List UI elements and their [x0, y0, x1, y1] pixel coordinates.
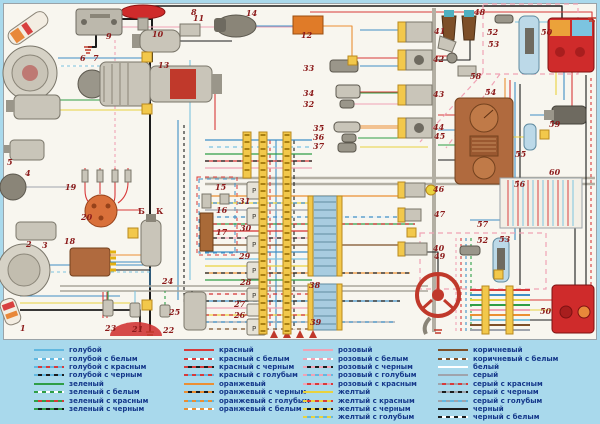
- connector-icons-46-47-40: [398, 182, 436, 256]
- legend-swatch: [438, 358, 468, 360]
- distributor-icon: [85, 195, 117, 227]
- component-number: 7: [93, 53, 99, 63]
- legend-label: розовый с голубым: [338, 371, 416, 379]
- component-number: 57: [477, 219, 489, 229]
- legend-label: красный с голубым: [219, 371, 298, 379]
- legend-swatch: [438, 349, 468, 351]
- legend-item: красный с черным: [184, 363, 310, 371]
- legend-label: желтый с голубым: [338, 413, 414, 421]
- component-number: 18: [64, 236, 76, 246]
- component-number: 47: [434, 209, 446, 219]
- component-number: 9: [106, 31, 112, 41]
- legend-label: черный с белым: [473, 413, 539, 421]
- fuel-sender-icon: [519, 16, 539, 74]
- legend-label: оранжевый с голубым: [219, 397, 310, 405]
- legend-item: оранжевый с черным: [184, 388, 310, 396]
- legend-item: коричневый: [438, 346, 558, 354]
- svg-text:P: P: [252, 325, 256, 333]
- component-number: 52: [487, 27, 499, 37]
- svg-text:P: P: [252, 267, 256, 275]
- legend-item: зеленый с красным: [34, 396, 148, 404]
- svg-text:P: P: [252, 213, 256, 221]
- component-number: 31: [239, 196, 250, 206]
- interior-lamp-icon-55: [524, 124, 536, 150]
- legend-label: зеленый с красным: [69, 397, 148, 405]
- legend-item: розовый с красным: [303, 380, 417, 388]
- legend-label: серый с голубым: [473, 397, 542, 405]
- component-number: 29: [238, 251, 251, 261]
- component-number: 22: [162, 325, 175, 335]
- legend-item: зеленый с белым: [34, 388, 148, 396]
- legend-label: голубой с красным: [69, 363, 146, 371]
- component-number: 25: [168, 307, 181, 317]
- legend-label: серый: [473, 371, 498, 379]
- legend-label: черный: [473, 405, 504, 413]
- legend-label: голубой с черным: [69, 371, 142, 379]
- terminal-letter: Б: [138, 206, 145, 216]
- legend-item: черный: [438, 405, 558, 413]
- legend-item: белый: [438, 363, 558, 371]
- horn-icon: [0, 174, 26, 200]
- component-number: 58: [470, 71, 482, 81]
- sensor-icon-52: [495, 15, 513, 23]
- legend-label: оранжевый с белым: [219, 405, 302, 413]
- voltage-regulator-icon: [70, 248, 116, 276]
- component-number: 45: [434, 131, 446, 141]
- legend-label: белый: [473, 363, 499, 371]
- tail-lamp-bottom-icon: [552, 285, 594, 333]
- component-number: 12: [301, 30, 313, 40]
- legend-swatch: [303, 366, 333, 368]
- legend-column-brown-grey-black: коричневыйкоричневый с белымбелыйсерыйсе…: [438, 346, 558, 422]
- component-number: 10: [152, 29, 164, 39]
- relay-icon-11: [180, 24, 200, 36]
- legend-item: розовый с белым: [303, 354, 417, 362]
- component-number: 34: [303, 88, 315, 98]
- legend-label: розовый с белым: [338, 355, 408, 363]
- legend-item: голубой с красным: [34, 363, 148, 371]
- component-number: 38: [309, 280, 321, 290]
- legend-item: голубой с черным: [34, 371, 148, 379]
- legend-label: оранжевый с черным: [219, 388, 306, 396]
- component-number: 16: [216, 205, 228, 215]
- legend-item: розовый с голубым: [303, 371, 417, 379]
- legend-swatch: [303, 416, 333, 418]
- component-number: 32: [303, 99, 315, 109]
- legend-swatch: [184, 366, 214, 368]
- component-number: 3: [42, 240, 48, 250]
- component-number: 13: [158, 60, 170, 70]
- legend-item: красный с белым: [184, 354, 310, 362]
- legend-swatch: [303, 374, 333, 376]
- legend-item: серый с голубым: [438, 396, 558, 404]
- relay-block-icons: [398, 22, 432, 138]
- component-number: 42: [433, 54, 445, 64]
- legend-label: розовый с черным: [338, 363, 413, 371]
- horn-top-icon: [121, 5, 165, 30]
- legend-item: зеленый: [34, 380, 148, 388]
- instrument-cluster-icon: [455, 98, 513, 184]
- legend-item: желтый: [303, 388, 417, 396]
- ignition-coils-icon: [442, 10, 476, 40]
- component-number: 5: [7, 157, 13, 167]
- legend-item: желтый с голубым: [303, 413, 417, 421]
- starter-icon: [150, 66, 222, 102]
- legend-label: коричневый: [473, 346, 523, 354]
- legend-item: коричневый с белым: [438, 354, 558, 362]
- component-number: 30: [240, 223, 252, 233]
- legend-swatch: [438, 366, 468, 368]
- legend-column-red-orange: красныйкрасный с белымкрасный с чернымкр…: [184, 346, 310, 413]
- legend-swatch: [438, 391, 468, 393]
- legend-column-pink-yellow: розовыйрозовый с белымрозовый с чернымро…: [303, 346, 417, 422]
- component-number: 53: [499, 234, 511, 244]
- component-number: 59: [549, 119, 561, 129]
- component-number: 15: [215, 182, 227, 192]
- component-number: 24: [161, 276, 174, 286]
- legend-item: желтый с красным: [303, 396, 417, 404]
- component-number: 2: [25, 239, 32, 249]
- legend-swatch: [34, 383, 64, 385]
- legend-swatch: [34, 408, 64, 410]
- legend-label: красный с черным: [219, 363, 294, 371]
- legend-swatch: [184, 349, 214, 351]
- legend-item: зеленый с черным: [34, 405, 148, 413]
- component-number: 46: [433, 184, 445, 194]
- terminal-letter: К: [156, 206, 164, 216]
- svg-text:P: P: [252, 187, 256, 195]
- legend-swatch: [303, 383, 333, 385]
- component-number: 1: [20, 323, 26, 333]
- legend-item: розовый: [303, 346, 417, 354]
- legend-item: голубой: [34, 346, 148, 354]
- legend-label: голубой: [69, 346, 102, 354]
- legend-label: зеленый с черным: [69, 405, 144, 413]
- legend-swatch: [34, 374, 64, 376]
- legend-label: красный: [219, 346, 254, 354]
- headlight-lower-icon: [0, 244, 50, 296]
- component-number: 48: [474, 7, 486, 17]
- legend-swatch: [184, 408, 214, 410]
- legend-label: розовый: [338, 346, 372, 354]
- spark-plugs-icon: [82, 170, 131, 182]
- component-number: 41: [434, 26, 445, 36]
- component-number: 55: [515, 149, 527, 159]
- legend-swatch: [303, 408, 333, 410]
- component-number: 27: [233, 299, 246, 309]
- legend-item: серый: [438, 371, 558, 379]
- generator-icon: [78, 62, 150, 106]
- legend-swatch: [438, 383, 468, 385]
- legend-swatch: [438, 416, 468, 418]
- component-number: 17: [216, 227, 228, 237]
- component-number: 6: [80, 53, 86, 63]
- legend-swatch: [34, 366, 64, 368]
- wire-bundle-icon: [470, 286, 530, 334]
- legend-label: оранжевый: [219, 380, 266, 388]
- legend-label: коричневый с белым: [473, 355, 558, 363]
- component-number: 14: [246, 8, 258, 18]
- legend-swatch: [438, 408, 468, 410]
- legend-item: желтый с черным: [303, 405, 417, 413]
- legend-swatch: [438, 400, 468, 402]
- legend-label: серый с черным: [473, 388, 539, 396]
- engine-sensor-icons: [103, 292, 206, 330]
- component-number: 21: [131, 324, 143, 334]
- component-number: 49: [434, 251, 446, 261]
- legend-item: розовый с черным: [303, 363, 417, 371]
- component-number: 52: [477, 235, 489, 245]
- component-number: 54: [485, 87, 497, 97]
- legend-label: серый с красным: [473, 380, 543, 388]
- legend-swatch: [34, 391, 64, 393]
- svg-text:P: P: [252, 292, 256, 300]
- legend-swatch: [438, 374, 468, 376]
- component-number: 37: [313, 141, 325, 151]
- component-number: 56: [514, 179, 526, 189]
- legend-label: голубой с белым: [69, 355, 138, 363]
- component-number: 28: [239, 277, 252, 287]
- component-number: 33: [303, 63, 315, 73]
- legend-swatch: [184, 358, 214, 360]
- legend-item: красный с голубым: [184, 371, 310, 379]
- legend-item: серый с черным: [438, 388, 558, 396]
- component-number: 43: [433, 89, 445, 99]
- legend-swatch: [184, 383, 214, 385]
- legend-label: розовый с красным: [338, 380, 417, 388]
- legend-swatch: [34, 349, 64, 351]
- wiring-diagram-page: PPP PPP: [0, 0, 600, 424]
- component-number: 50: [541, 27, 553, 37]
- defroster-grid-icon: [500, 178, 582, 228]
- legend-label: зеленый с белым: [69, 388, 140, 396]
- legend-swatch: [303, 358, 333, 360]
- component-number: 11: [193, 13, 204, 23]
- legend-item: оранжевый с белым: [184, 405, 310, 413]
- headlight-upper-icon: [3, 46, 57, 100]
- legend-item: оранжевый: [184, 380, 310, 388]
- legend: голубойголубой с белымголубой с краснымг…: [0, 344, 600, 424]
- fuse-block-icon-38: [308, 196, 342, 276]
- legend-item: голубой с белым: [34, 354, 148, 362]
- legend-swatch: [34, 358, 64, 360]
- svg-text:P: P: [252, 241, 256, 249]
- legend-item: красный: [184, 346, 310, 354]
- ignition-coil-icon: [141, 214, 161, 266]
- battery-icon: [76, 9, 122, 35]
- tail-lamp-top-icon: [548, 18, 594, 72]
- switch-sensor-icons-32-37: [330, 60, 360, 152]
- legend-label: желтый: [338, 388, 370, 396]
- legend-label: красный с белым: [219, 355, 290, 363]
- component-number: 20: [80, 212, 93, 222]
- legend-column-blue-green: голубойголубой с белымголубой с краснымг…: [34, 346, 148, 413]
- component-number: 53: [488, 39, 500, 49]
- ground-plug-icons: [270, 330, 317, 338]
- legend-item: черный с белым: [438, 413, 558, 421]
- front-turn-lamp-icon: [5, 9, 50, 47]
- legend-swatch: [184, 391, 214, 393]
- legend-swatch: [303, 349, 333, 351]
- components: PPP PPP: [0, 5, 596, 338]
- component-number: 50: [540, 306, 552, 316]
- heater-motor-icon: [6, 95, 60, 119]
- wiper-motor-icon: [214, 15, 256, 37]
- component-number: 60: [549, 167, 561, 177]
- component-number: 26: [233, 310, 246, 320]
- component-number: 19: [65, 182, 77, 192]
- legend-swatch: [184, 400, 214, 402]
- component-number: 23: [104, 323, 117, 333]
- component-number: 39: [310, 317, 322, 327]
- legend-label: желтый с красным: [338, 397, 415, 405]
- legend-swatch: [34, 400, 64, 402]
- legend-item: оранжевый с голубым: [184, 396, 310, 404]
- legend-item: серый с красным: [438, 380, 558, 388]
- legend-swatch: [303, 400, 333, 402]
- legend-label: желтый с черным: [338, 405, 411, 413]
- steering-wheel-icon: [417, 274, 459, 334]
- legend-swatch: [184, 374, 214, 376]
- legend-label: зеленый: [69, 380, 104, 388]
- schematic-drawing: PPP PPP: [0, 0, 600, 341]
- component-number: 4: [25, 168, 31, 178]
- legend-swatch: [303, 391, 333, 393]
- wiper-washer-motor-icon: [16, 222, 56, 240]
